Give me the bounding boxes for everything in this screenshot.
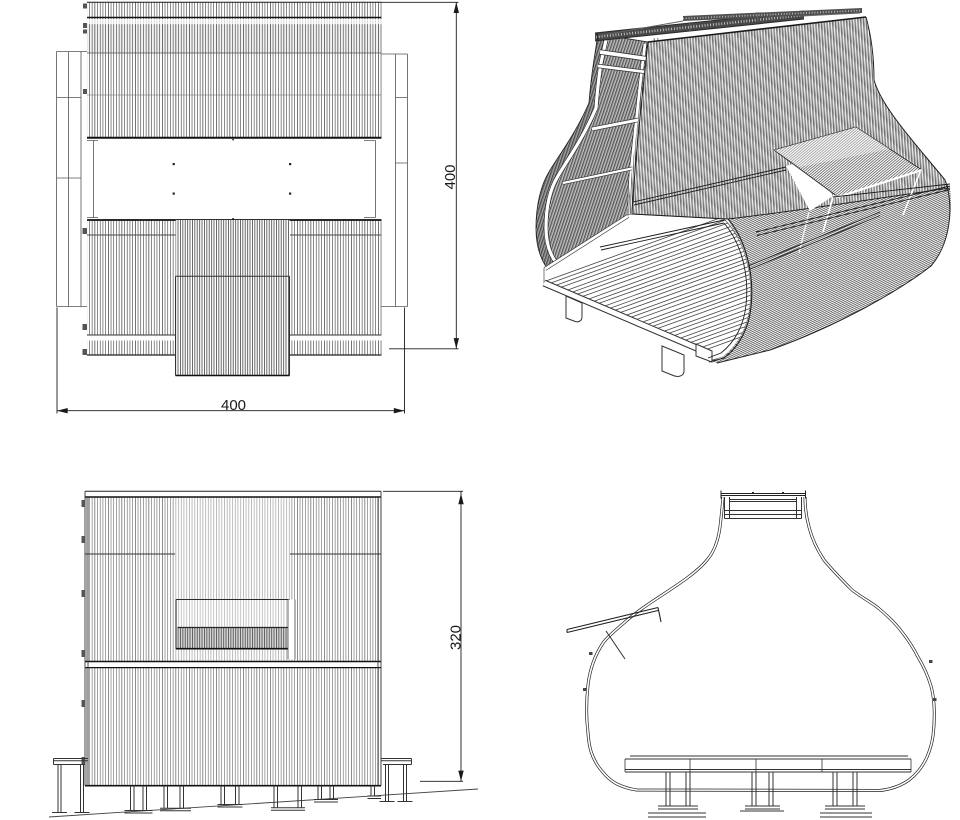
svg-text:400: 400: [221, 397, 246, 414]
svg-text:320: 320: [448, 625, 465, 650]
svg-text:400: 400: [442, 164, 459, 189]
